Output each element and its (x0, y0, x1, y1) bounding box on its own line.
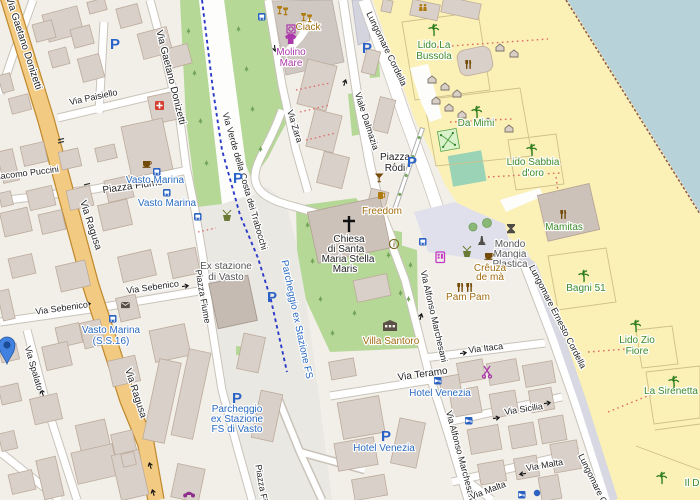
svg-text:P: P (110, 36, 120, 53)
svg-text:La Sirenetta: La Sirenetta (644, 386, 698, 397)
svg-text:Villa Santoro: Villa Santoro (363, 336, 420, 347)
svg-text:di Vasto: di Vasto (208, 272, 244, 283)
svg-text:Ciack: Ciack (295, 22, 321, 33)
svg-text:Hotel Venezia: Hotel Venezia (409, 388, 471, 399)
svg-text:Vasto Marina: Vasto Marina (138, 198, 197, 209)
svg-text:Mamitas: Mamitas (545, 222, 583, 233)
svg-text:Bussola: Bussola (416, 51, 452, 62)
svg-text:P: P (362, 40, 372, 57)
svg-text:Rodi: Rodi (385, 163, 406, 174)
svg-text:Molino: Molino (276, 47, 306, 58)
svg-text:Lido Zio: Lido Zio (619, 335, 655, 346)
svg-text:Mare: Mare (280, 58, 303, 69)
svg-text:Da Mimi: Da Mimi (458, 118, 495, 129)
svg-text:Freedom: Freedom (362, 206, 402, 217)
svg-text:Bagni 51: Bagni 51 (566, 283, 606, 294)
svg-text:de mà: de mà (476, 272, 504, 283)
svg-text:Il D: Il D (685, 478, 700, 489)
svg-text:Lido Sabbia: Lido Sabbia (507, 157, 560, 168)
svg-text:Vasto Marina: Vasto Marina (82, 325, 141, 336)
svg-text:P: P (233, 170, 243, 187)
svg-text:Ex stazione: Ex stazione (200, 261, 252, 272)
svg-text:Fiore: Fiore (626, 346, 649, 357)
svg-text:Vasto Marina: Vasto Marina (126, 175, 185, 186)
svg-text:Maris: Maris (333, 264, 357, 275)
svg-text:d'oro: d'oro (522, 168, 544, 179)
svg-text:FS di Vasto: FS di Vasto (212, 424, 263, 435)
svg-text:(S.S.16): (S.S.16) (93, 336, 130, 347)
svg-text:Piazza: Piazza (380, 152, 410, 163)
svg-text:P: P (407, 154, 417, 171)
svg-text:Pam Pam: Pam Pam (446, 292, 490, 303)
svg-text:P: P (267, 289, 277, 306)
svg-text:Hotel Venezia: Hotel Venezia (353, 443, 415, 454)
svg-text:Lido La: Lido La (418, 40, 451, 51)
